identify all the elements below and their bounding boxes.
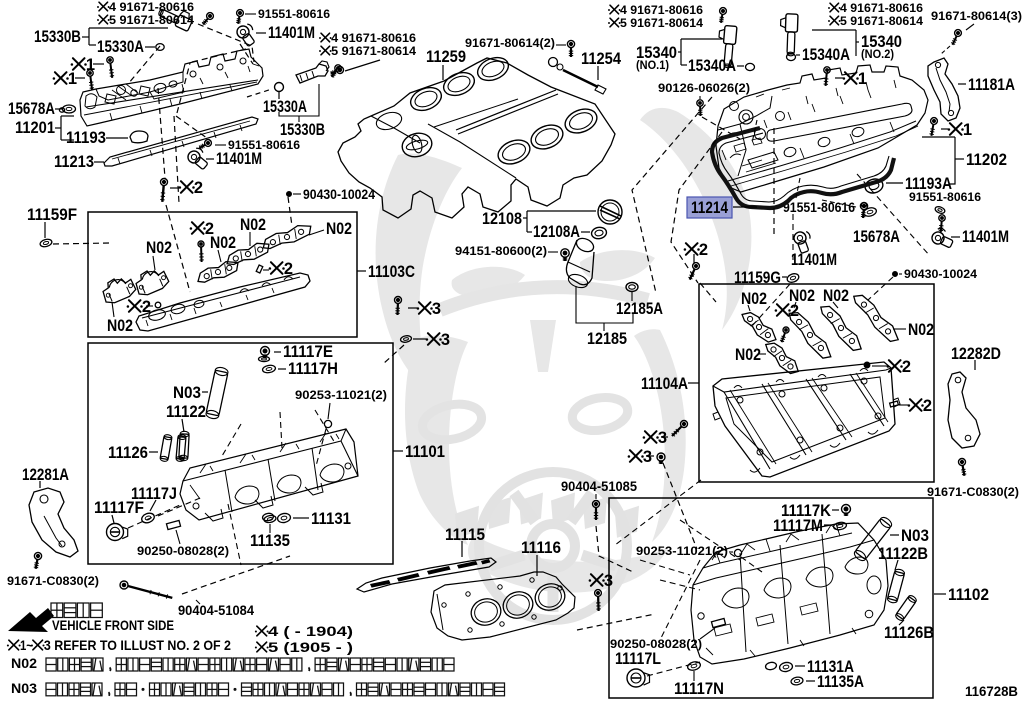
svg-text:90430-10024: 90430-10024	[303, 187, 375, 202]
svg-text:VEHICLE FRONT SIDE: VEHICLE FRONT SIDE	[52, 618, 174, 633]
svg-text:N03: N03	[11, 681, 37, 696]
svg-text:5 (1905 - ): 5 (1905 - )	[268, 640, 353, 655]
svg-text:11135A: 11135A	[817, 673, 864, 691]
svg-text:11117F: 11117F	[94, 499, 144, 517]
svg-text:15330A: 15330A	[263, 98, 307, 116]
svg-text:11102: 11102	[948, 586, 989, 604]
svg-text:90250-08028(2): 90250-08028(2)	[610, 637, 702, 651]
svg-text:2: 2	[923, 397, 932, 415]
svg-text:12281A: 12281A	[22, 466, 69, 484]
svg-text:1: 1	[858, 70, 867, 88]
svg-text:90126-06026(2): 90126-06026(2)	[658, 81, 750, 95]
svg-text:N03: N03	[901, 527, 929, 545]
svg-text:N02: N02	[107, 317, 133, 335]
svg-text:11135: 11135	[250, 532, 290, 550]
svg-text:2: 2	[205, 220, 214, 238]
svg-text:3: 3	[604, 572, 613, 590]
svg-text:11126B: 11126B	[884, 624, 934, 642]
svg-text:4 91671-80616: 4 91671-80616	[109, 0, 194, 14]
svg-text:5 91671-80614: 5 91671-80614	[331, 44, 416, 58]
svg-text:11116: 11116	[521, 539, 561, 557]
svg-text:15678A: 15678A	[853, 228, 900, 246]
svg-text:N02: N02	[823, 287, 849, 305]
svg-text:3 REFER TO ILLUST NO. 2 OF 2: 3 REFER TO ILLUST NO. 2 OF 2	[44, 638, 231, 653]
svg-text:11126: 11126	[108, 444, 148, 462]
svg-text:11159G: 11159G	[734, 269, 781, 287]
svg-text:N02: N02	[146, 239, 172, 257]
svg-text:11193: 11193	[66, 129, 106, 147]
svg-text:3: 3	[432, 300, 441, 318]
svg-text:15330A: 15330A	[97, 38, 144, 56]
svg-text:91671-C0830(2): 91671-C0830(2)	[927, 485, 1019, 499]
svg-text:11181A: 11181A	[968, 76, 1015, 94]
svg-text:12108: 12108	[482, 210, 522, 228]
svg-text:90430-10024: 90430-10024	[904, 267, 977, 281]
svg-text:12282D: 12282D	[951, 345, 1001, 363]
svg-text:91551-80616: 91551-80616	[783, 200, 855, 215]
svg-text:N03: N03	[173, 384, 201, 402]
svg-text:11254: 11254	[581, 50, 622, 68]
svg-text:11122: 11122	[166, 403, 206, 421]
svg-text:11117E: 11117E	[283, 343, 333, 361]
svg-text:N02: N02	[326, 220, 352, 238]
svg-text:11201: 11201	[15, 119, 55, 137]
svg-text:91551-80616: 91551-80616	[258, 7, 330, 21]
svg-text:11115: 11115	[445, 526, 485, 544]
svg-text:1: 1	[68, 70, 77, 88]
svg-text:11259: 11259	[426, 48, 466, 66]
svg-text:91671-80614(3): 91671-80614(3)	[931, 9, 1022, 23]
svg-text:11401M: 11401M	[268, 24, 315, 42]
svg-text:91551-80616: 91551-80616	[909, 190, 981, 204]
svg-text:2: 2	[699, 241, 708, 259]
svg-text:3: 3	[643, 448, 652, 466]
svg-text:11131: 11131	[311, 510, 351, 528]
svg-text:2: 2	[902, 358, 911, 376]
svg-text:12185A: 12185A	[616, 300, 663, 318]
svg-text:11117H: 11117H	[288, 360, 338, 378]
svg-text:116728B: 116728B	[965, 684, 1018, 699]
svg-text:11117L: 11117L	[615, 650, 661, 668]
svg-text:11401M: 11401M	[962, 228, 1009, 246]
svg-text:5 91671-80614: 5 91671-80614	[840, 14, 923, 28]
svg-text:N02: N02	[11, 656, 37, 671]
svg-text:N02: N02	[908, 321, 934, 339]
svg-text:2: 2	[194, 179, 203, 197]
svg-text:11202: 11202	[966, 151, 1007, 169]
svg-text:2: 2	[790, 302, 799, 320]
svg-text:4 91671-80616: 4 91671-80616	[331, 31, 416, 45]
svg-text:4 91671-80616: 4 91671-80616	[620, 3, 703, 17]
svg-text:5 91671-80614: 5 91671-80614	[620, 16, 703, 30]
svg-text:N02: N02	[735, 346, 761, 364]
svg-text:90250-08028(2): 90250-08028(2)	[137, 544, 229, 558]
svg-text:11401M: 11401M	[216, 150, 262, 168]
svg-text:11117N: 11117N	[674, 680, 724, 698]
svg-text:90404-51085: 90404-51085	[561, 479, 637, 494]
svg-text:91671-C0830(2): 91671-C0830(2)	[7, 574, 99, 588]
svg-text:N02: N02	[741, 290, 767, 308]
svg-text:91671-80614(2): 91671-80614(2)	[465, 36, 555, 50]
svg-text:11101: 11101	[405, 443, 445, 461]
svg-text:90404-51084: 90404-51084	[178, 603, 254, 618]
svg-text:(NO.2): (NO.2)	[861, 47, 894, 61]
svg-text:94151-80600(2): 94151-80600(2)	[455, 244, 547, 258]
svg-text:11104A: 11104A	[641, 375, 688, 393]
svg-text:12108A: 12108A	[533, 223, 580, 241]
svg-text:15678A: 15678A	[8, 100, 55, 118]
svg-text:N02: N02	[240, 216, 266, 234]
svg-text:11103C: 11103C	[368, 263, 415, 281]
svg-text:90253-11021(2): 90253-11021(2)	[295, 388, 387, 402]
svg-text:11214: 11214	[691, 199, 729, 217]
svg-text:(NO.1): (NO.1)	[636, 58, 669, 72]
svg-text:11213: 11213	[54, 153, 94, 171]
svg-text:3: 3	[441, 331, 450, 349]
svg-text:3: 3	[658, 429, 667, 447]
svg-text:11117M: 11117M	[773, 517, 823, 535]
svg-text:4 ( - 1904): 4 ( - 1904)	[268, 624, 353, 639]
svg-text:11159F: 11159F	[27, 206, 77, 224]
svg-text:11401M: 11401M	[791, 251, 837, 269]
svg-text:1: 1	[963, 121, 972, 139]
svg-text:15330B: 15330B	[34, 28, 81, 46]
svg-text:4 91671-80616: 4 91671-80616	[840, 1, 923, 15]
svg-text:12185: 12185	[587, 330, 627, 348]
svg-text:15330B: 15330B	[280, 121, 325, 139]
svg-text:15340A: 15340A	[802, 46, 850, 64]
